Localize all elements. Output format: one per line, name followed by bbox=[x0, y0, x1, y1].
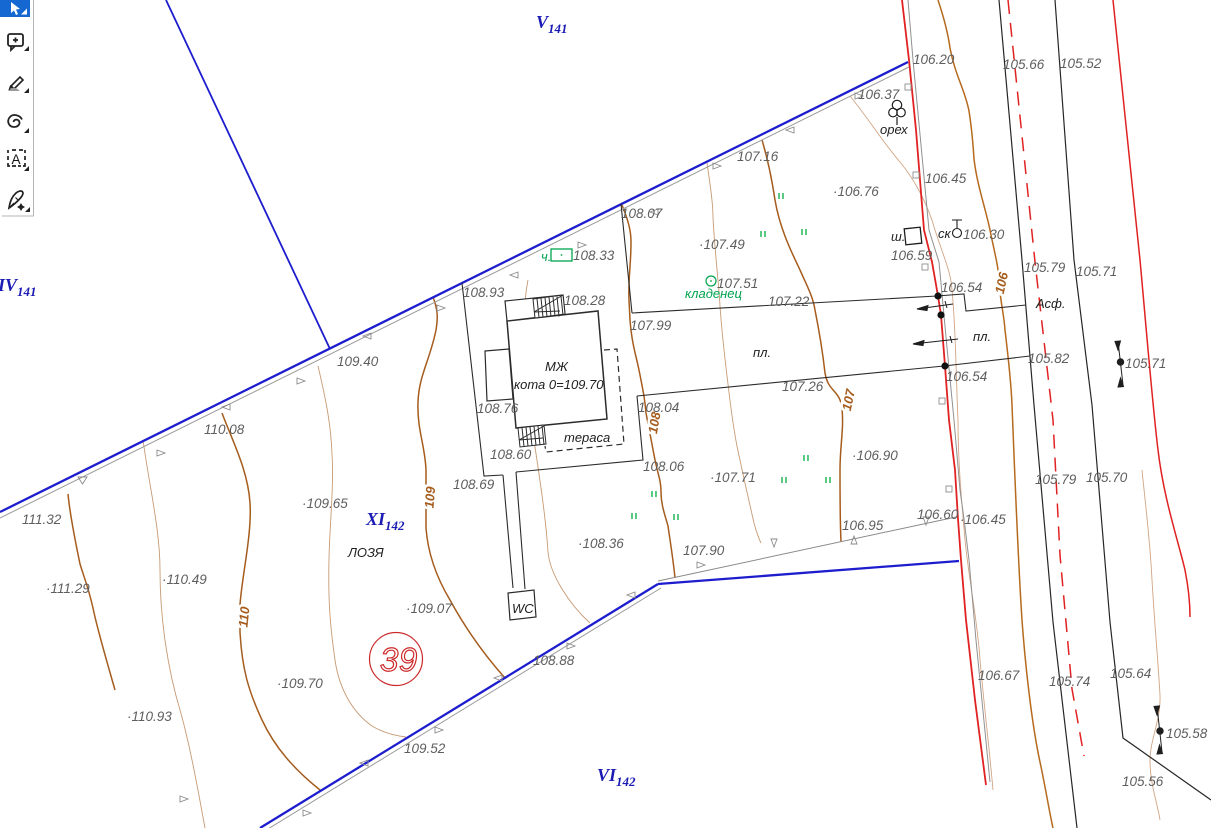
svg-text:106.37: 106.37 bbox=[858, 87, 900, 102]
svg-text:107.90: 107.90 bbox=[683, 543, 725, 558]
svg-text:107.26: 107.26 bbox=[782, 379, 824, 394]
svg-text:108.04: 108.04 bbox=[638, 400, 679, 415]
svg-text:орех: орех bbox=[880, 122, 908, 137]
svg-text:ЛОЗЯ: ЛОЗЯ bbox=[347, 545, 384, 560]
svg-text:МЖ: МЖ bbox=[545, 359, 569, 374]
svg-text:106.95: 106.95 bbox=[842, 518, 884, 533]
svg-text:106.45: 106.45 bbox=[925, 171, 967, 186]
svg-text:·106.45: ·106.45 bbox=[960, 512, 1006, 527]
svg-text:·106.76: ·106.76 bbox=[833, 184, 879, 199]
svg-text:·108.36: ·108.36 bbox=[578, 536, 624, 551]
svg-text:·110.49: ·110.49 bbox=[162, 572, 207, 587]
svg-text:ч.: ч. bbox=[541, 249, 551, 264]
svg-text:105.71: 105.71 bbox=[1125, 356, 1166, 371]
svg-text:109: 109 bbox=[422, 485, 439, 508]
svg-text:105.79: 105.79 bbox=[1024, 260, 1066, 275]
svg-text:106.67: 106.67 bbox=[978, 668, 1020, 683]
svg-text:·111.29: ·111.29 bbox=[46, 581, 90, 596]
svg-text:108.88: 108.88 bbox=[533, 653, 575, 668]
svg-text:·107.71: ·107.71 bbox=[710, 470, 756, 485]
svg-text:пл.: пл. bbox=[973, 329, 991, 344]
svg-text:111.32: 111.32 bbox=[22, 512, 62, 527]
svg-text:106.60: 106.60 bbox=[917, 507, 959, 522]
svg-text:WC: WC bbox=[512, 601, 534, 616]
svg-text:107.99: 107.99 bbox=[630, 318, 672, 333]
svg-text:105.58: 105.58 bbox=[1166, 726, 1208, 741]
svg-text:106.30: 106.30 bbox=[963, 227, 1005, 242]
svg-text:ск: ск bbox=[938, 226, 952, 241]
svg-text:·106.90: ·106.90 bbox=[852, 448, 898, 463]
svg-text:108.93: 108.93 bbox=[463, 285, 505, 300]
svg-text:108.07: 108.07 bbox=[621, 206, 663, 221]
svg-text:108.69: 108.69 bbox=[453, 477, 495, 492]
svg-text:пл.: пл. bbox=[753, 345, 771, 360]
svg-text:·109.70: ·109.70 bbox=[277, 676, 323, 691]
svg-text:·109.07: ·109.07 bbox=[406, 601, 452, 616]
svg-text:109.52: 109.52 bbox=[404, 741, 446, 756]
svg-text:105.64: 105.64 bbox=[1110, 666, 1151, 681]
svg-text:109.40: 109.40 bbox=[337, 354, 379, 369]
svg-text:A: A bbox=[12, 152, 21, 167]
svg-text:106.54: 106.54 bbox=[941, 280, 982, 295]
svg-text:105.66: 105.66 bbox=[1003, 57, 1045, 72]
svg-text:106.59: 106.59 bbox=[891, 248, 933, 263]
svg-text:·107.49: ·107.49 bbox=[699, 237, 745, 252]
svg-text:105.82: 105.82 bbox=[1028, 351, 1070, 366]
svg-text:39: 39 bbox=[380, 641, 418, 678]
svg-text:кота 0=109.70: кота 0=109.70 bbox=[514, 377, 604, 392]
svg-text:107.16: 107.16 bbox=[737, 149, 779, 164]
svg-text:105.52: 105.52 bbox=[1060, 56, 1102, 71]
svg-text:107.51: 107.51 bbox=[717, 276, 758, 291]
svg-text:108.06: 108.06 bbox=[643, 459, 685, 474]
svg-text:ш.: ш. bbox=[891, 229, 905, 244]
svg-text:105.71: 105.71 bbox=[1076, 264, 1117, 279]
svg-text:108.60: 108.60 bbox=[490, 447, 532, 462]
svg-text:108.33: 108.33 bbox=[573, 248, 615, 263]
svg-text:110.08: 110.08 bbox=[204, 422, 245, 437]
svg-text:105.56: 105.56 bbox=[1122, 774, 1164, 789]
svg-text:110: 110 bbox=[235, 605, 252, 628]
svg-text:108.28: 108.28 bbox=[564, 293, 606, 308]
svg-text:Асф.: Асф. bbox=[1035, 296, 1066, 311]
svg-text:·109.65: ·109.65 bbox=[302, 496, 348, 511]
svg-text:105.70: 105.70 bbox=[1086, 470, 1128, 485]
svg-text:·110.93: ·110.93 bbox=[127, 709, 172, 724]
svg-text:106.20: 106.20 bbox=[913, 52, 955, 67]
svg-text:106.54: 106.54 bbox=[946, 369, 987, 384]
svg-text:108.76: 108.76 bbox=[477, 401, 519, 416]
svg-text:тераса: тераса bbox=[564, 430, 610, 445]
svg-text:107.22: 107.22 bbox=[768, 294, 810, 309]
svg-text:105.79: 105.79 bbox=[1035, 472, 1077, 487]
svg-text:105.74: 105.74 bbox=[1049, 674, 1090, 689]
